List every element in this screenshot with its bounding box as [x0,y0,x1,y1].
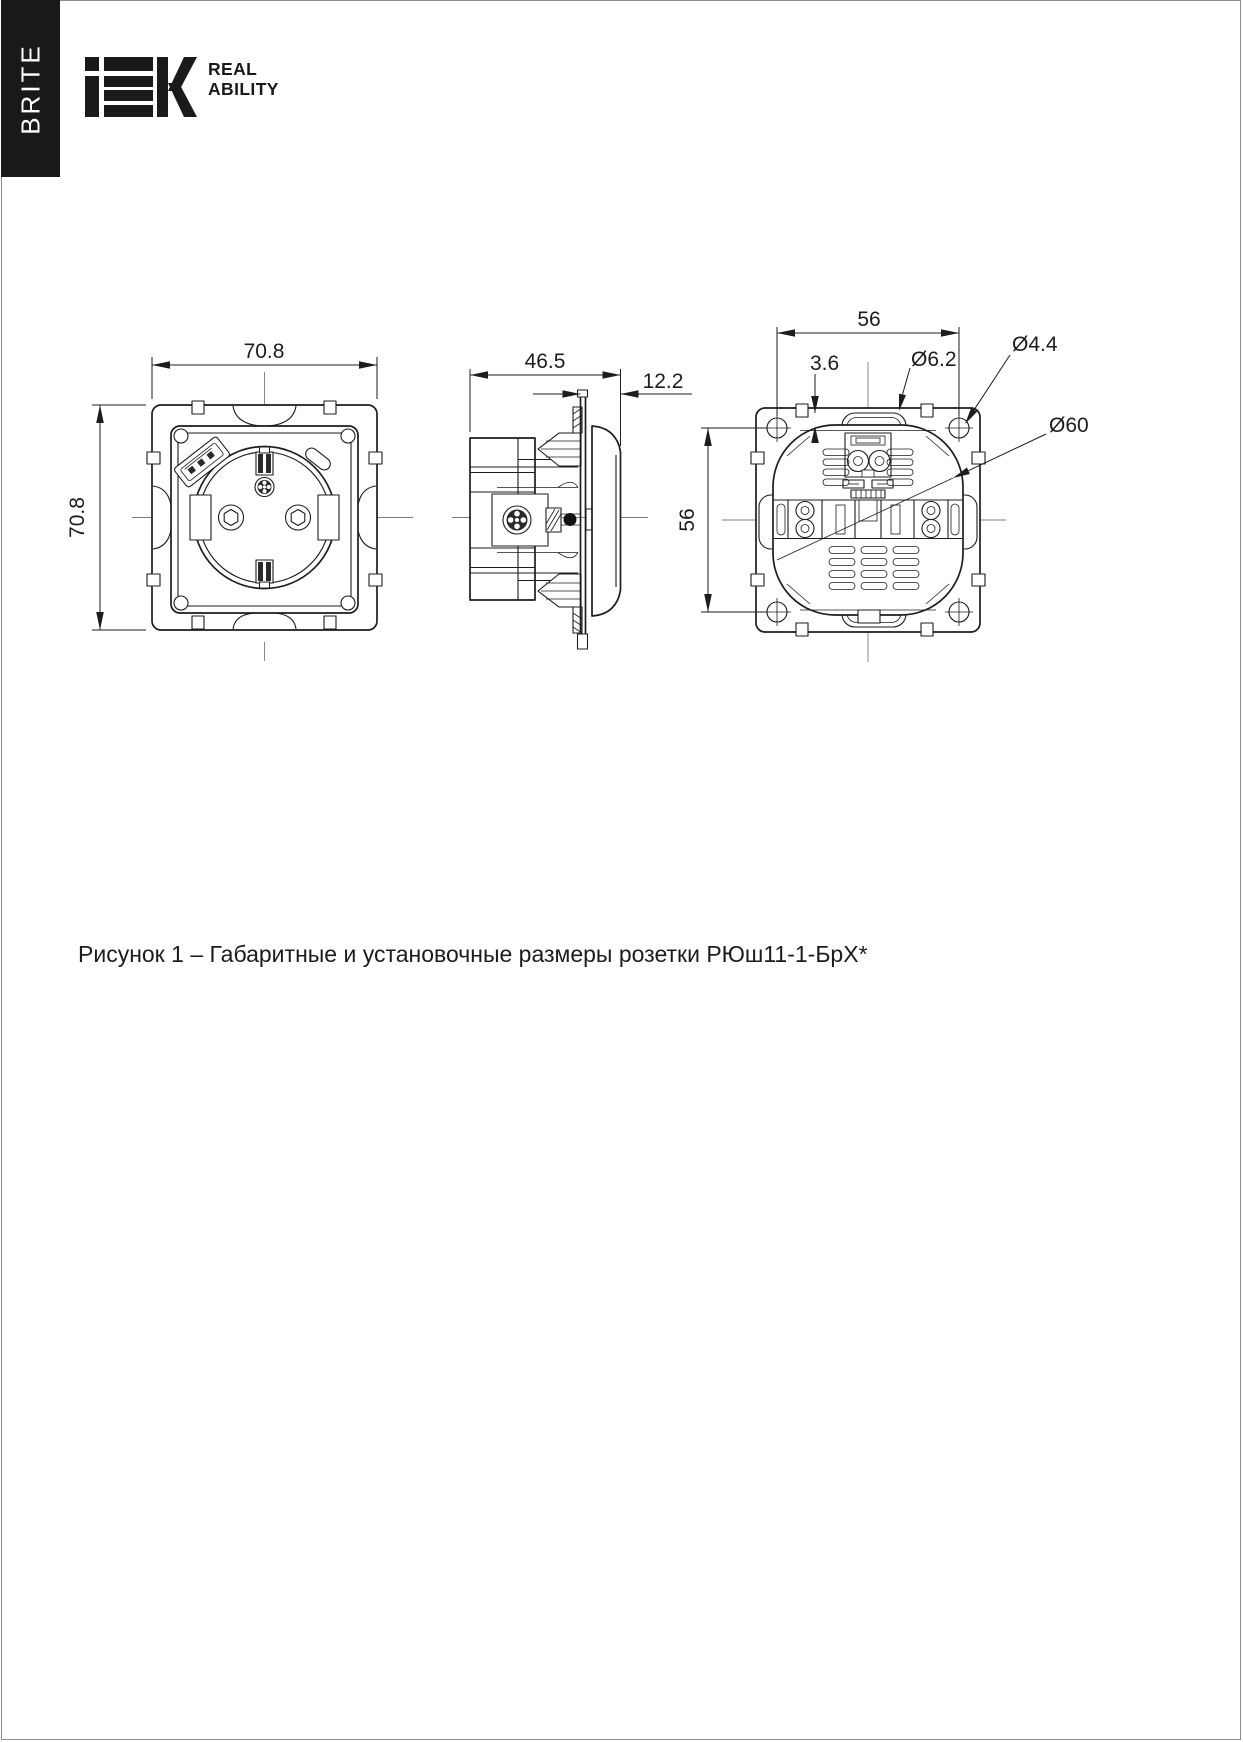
back-terminal-band [774,500,962,539]
document-page: BRITE REAL ABILITY [0,0,1243,1742]
back-hole-spacing-v-label: 56 [676,508,699,531]
front-center-screw [255,478,274,497]
side-mounting-flange [578,390,593,649]
dim-back-lobe-diameter: Ø6.2 [899,348,957,411]
front-view: 70.8 70.8 [66,340,413,661]
side-cover-depth-label: 12.2 [643,370,684,393]
figure-caption: Рисунок 1 – Габаритные и установочные ра… [78,941,868,968]
front-width-label: 70.8 [244,340,285,363]
back-body-diameter-label: Ø60 [1049,414,1089,437]
side-cover-profile [592,426,621,616]
side-depth-label: 46.5 [525,350,566,373]
front-height-label: 70.8 [66,497,89,538]
side-view: 46.5 12.2 [452,350,692,649]
side-fixing-screw [492,482,580,558]
back-mount-hole-diameter-label: Ø4.4 [1012,333,1058,356]
back-lobe-protrusion-label: 3.6 [810,352,839,375]
side-claw-top [538,407,582,466]
dim-back-mount-hole-diameter: Ø4.4 [965,333,1058,424]
dimension-drawing: 70.8 70.8 [0,0,1243,1742]
back-view: 56 56 3.6 Ø6.2 [676,308,1089,662]
back-hole-spacing-h-label: 56 [857,308,880,331]
side-claw-bottom [538,574,582,633]
back-lobe-diameter-label: Ø6.2 [911,348,957,371]
